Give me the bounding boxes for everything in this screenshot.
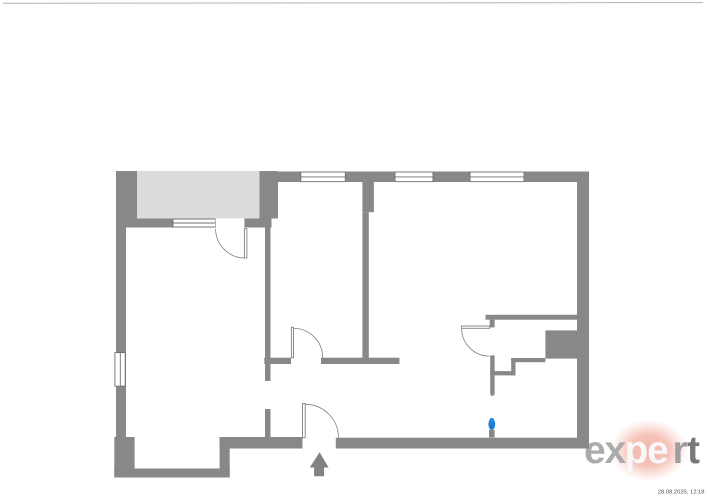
svg-text:r: r	[673, 429, 688, 472]
svg-text:28.08.2025, 12:18: 28.08.2025, 12:18	[658, 490, 705, 496]
svg-text:pe: pe	[625, 429, 669, 472]
svg-text:t: t	[687, 429, 700, 472]
svg-text:ex: ex	[584, 429, 626, 472]
